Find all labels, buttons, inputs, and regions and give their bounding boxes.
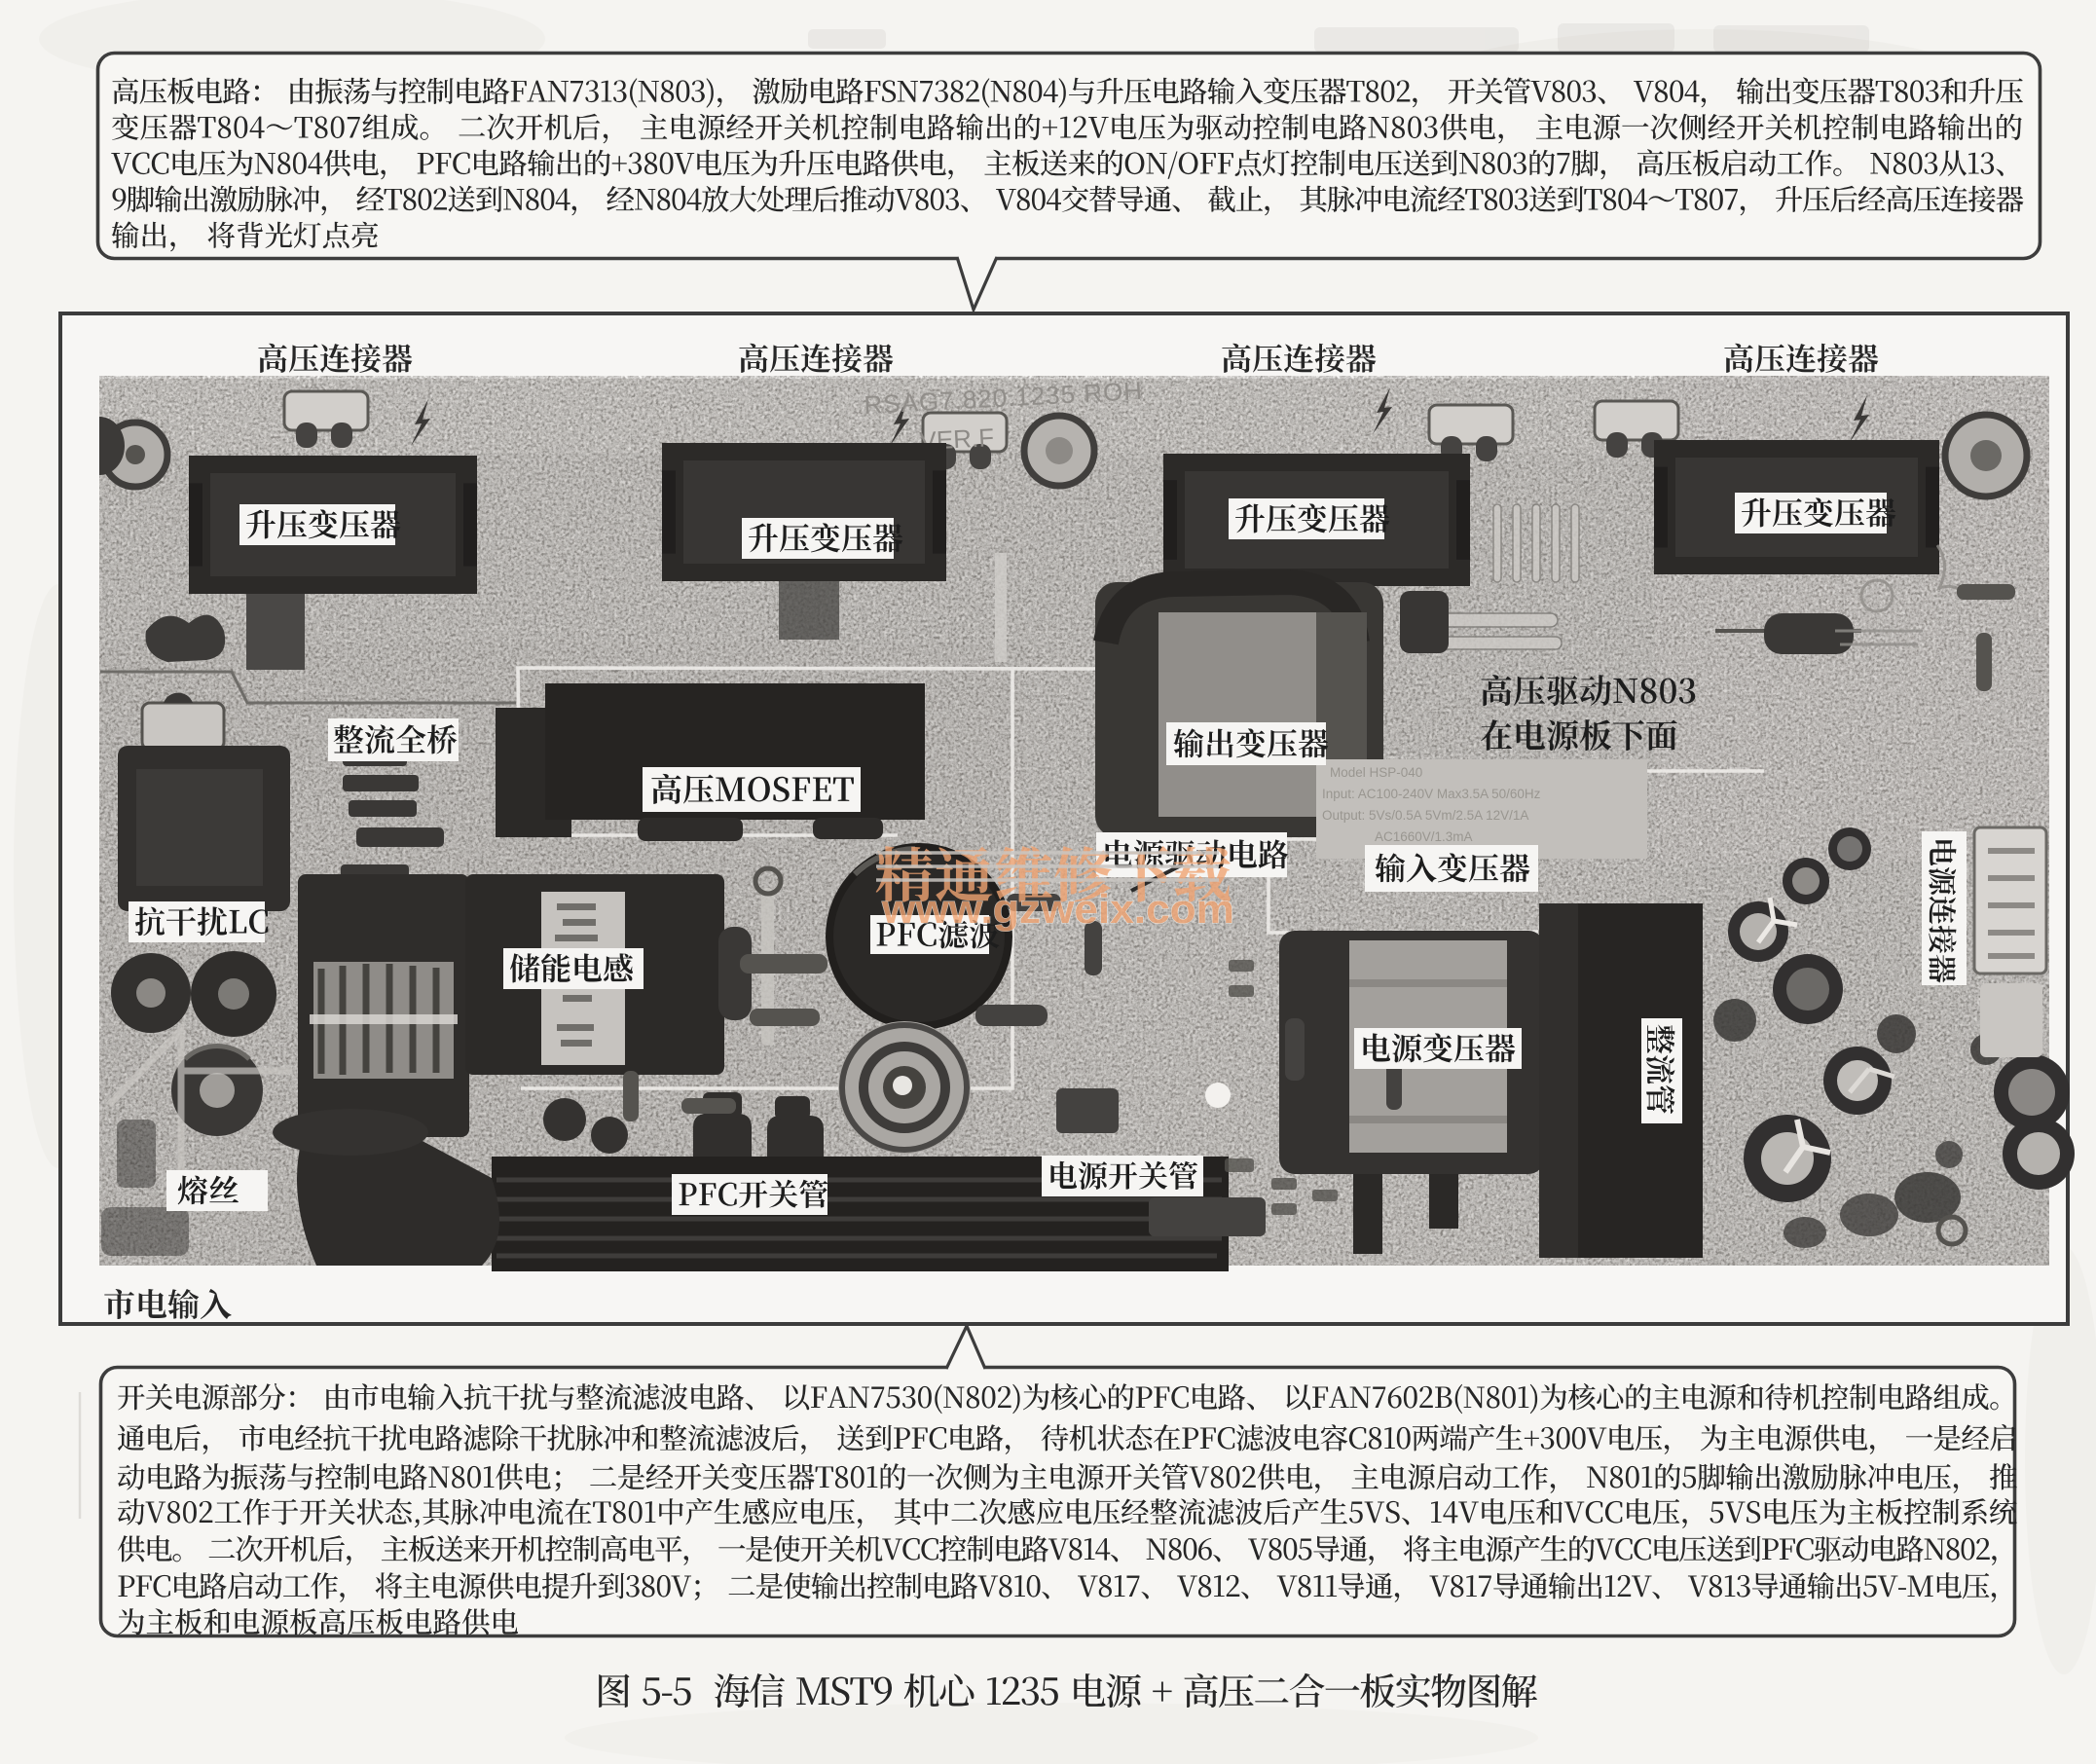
svg-text:www.gzweix.com: www.gzweix.com (881, 886, 1234, 932)
svg-text:Model HSP-040: Model HSP-040 (1330, 765, 1422, 780)
svg-text:Output: 5Vs/0.5A 5Vm/2.5A 12: Output: 5Vs/0.5A 5Vm/2.5A 12V/1A (1322, 808, 1528, 823)
svg-text:Input: AC100-240V Max3.5A 50: Input: AC100-240V Max3.5A 50/60Hz (1322, 787, 1541, 801)
svg-text:AC1660V/1.3mA: AC1660V/1.3mA (1375, 829, 1473, 844)
